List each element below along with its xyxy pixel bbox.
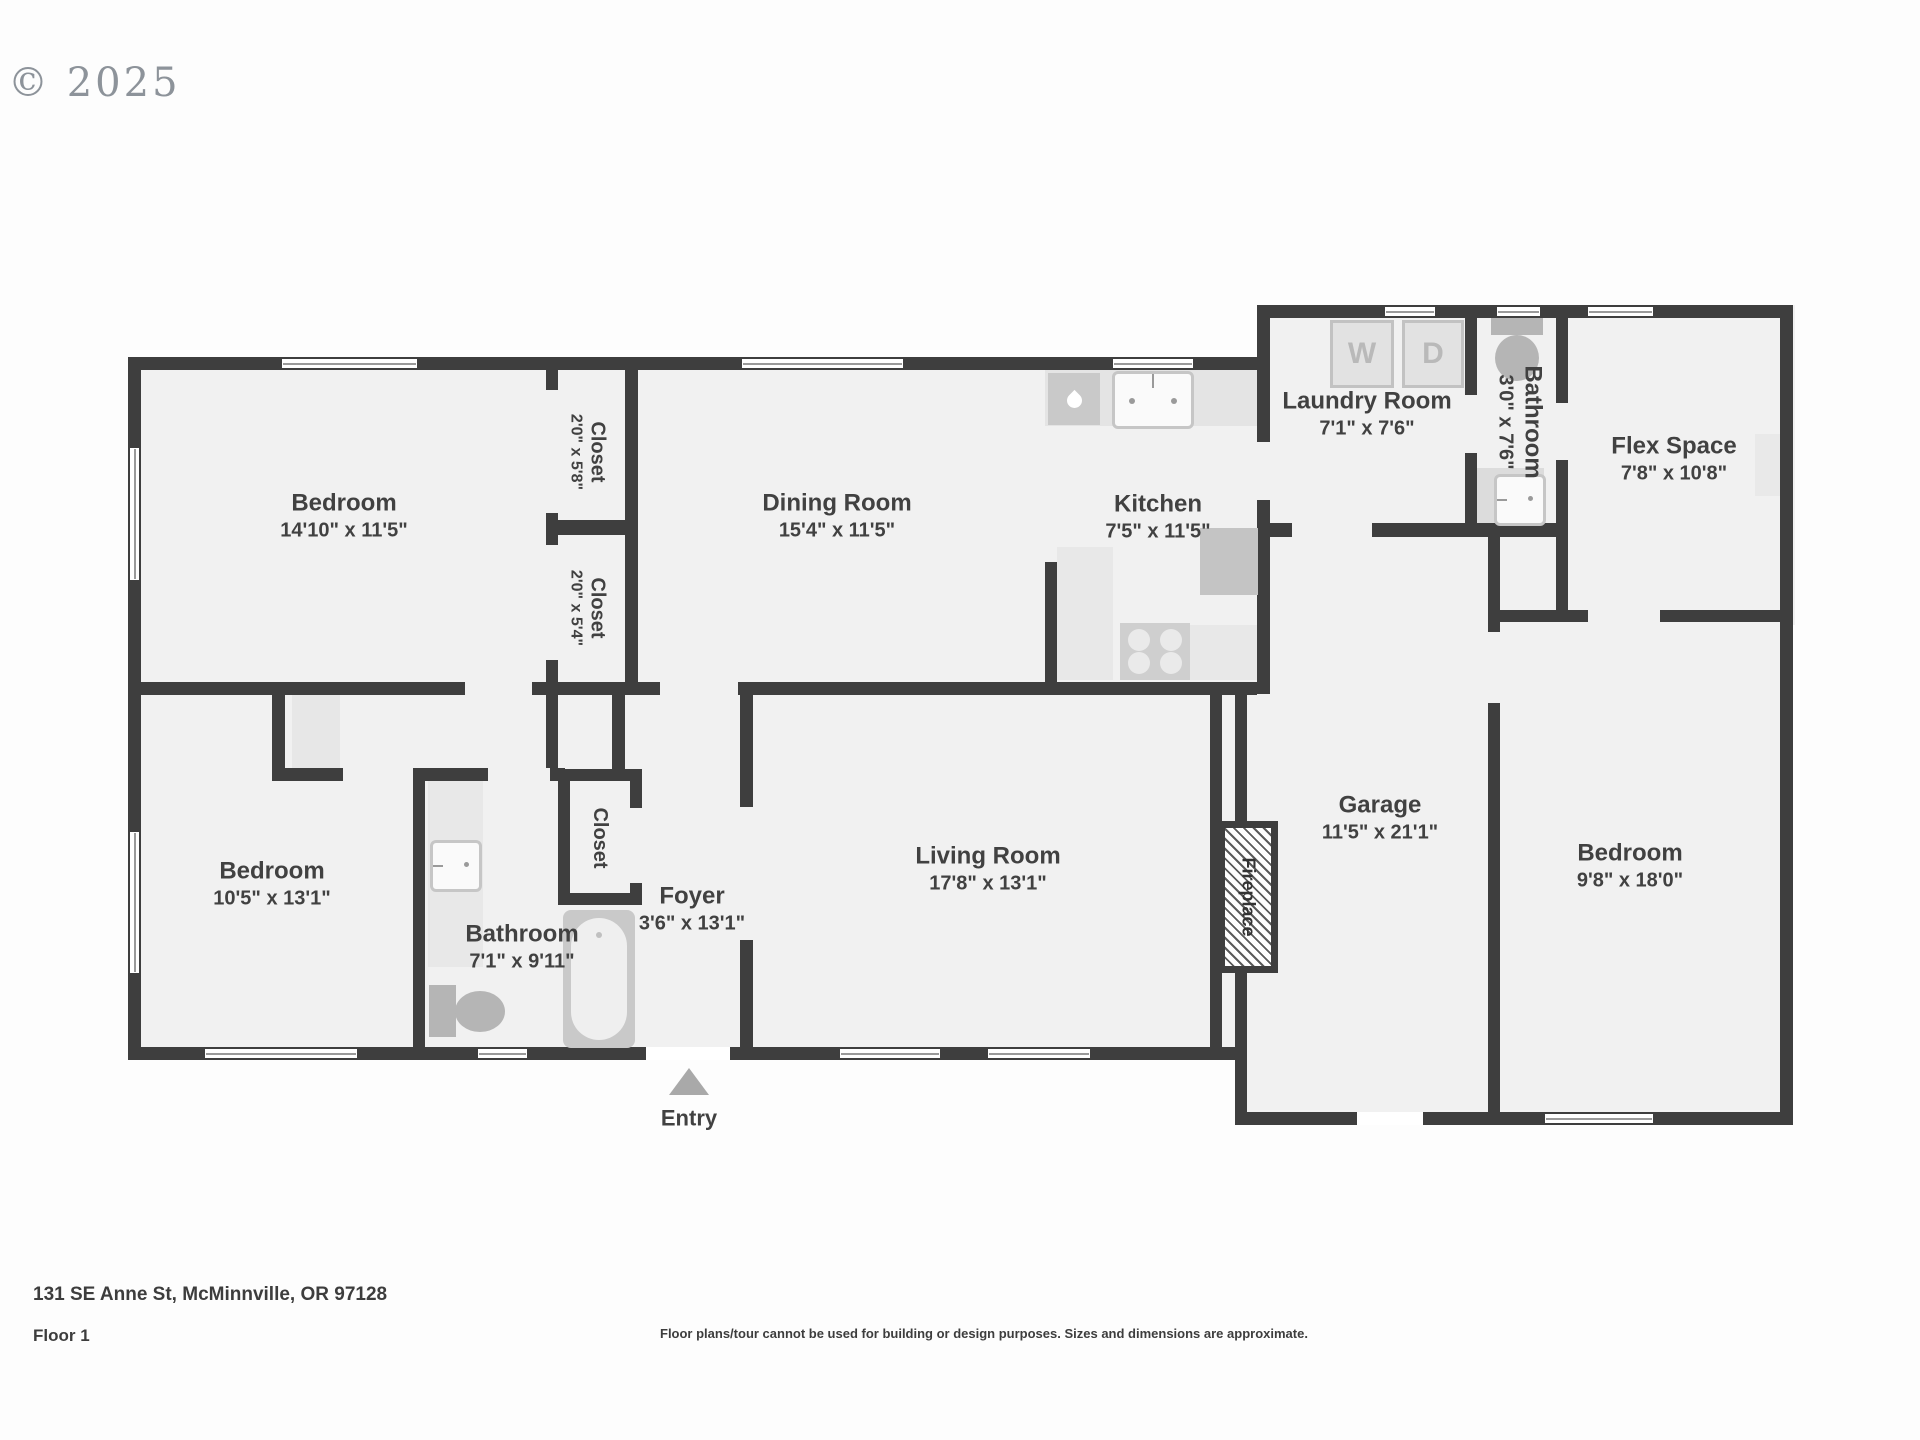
stove-icon bbox=[1120, 623, 1190, 680]
wall bbox=[612, 694, 625, 769]
door-opening bbox=[1588, 610, 1660, 622]
room-label-dining-room: Dining Room15'4" x 11'5" bbox=[762, 489, 911, 544]
door-opening bbox=[465, 682, 532, 695]
toilet-bowl-icon bbox=[455, 991, 505, 1032]
window bbox=[1385, 305, 1435, 318]
door-opening bbox=[546, 545, 558, 660]
entry-arrow-icon bbox=[669, 1068, 709, 1095]
door-opening bbox=[1292, 523, 1372, 537]
door-opening bbox=[546, 390, 558, 513]
bathroom-sink-icon bbox=[1494, 474, 1546, 526]
dryer-icon: D bbox=[1402, 320, 1464, 388]
window bbox=[742, 357, 903, 370]
kitchen-sink-icon bbox=[1112, 371, 1194, 429]
window bbox=[478, 1047, 527, 1060]
room-label-bedroom-top-left: Bedroom14'10" x 11'5" bbox=[280, 489, 407, 544]
kitchen-counter bbox=[1190, 625, 1257, 680]
window bbox=[282, 357, 417, 370]
room-label-flex-space: Flex Space7'8" x 10'8" bbox=[1611, 432, 1736, 487]
toilet-icon bbox=[429, 985, 456, 1037]
door-opening bbox=[1257, 442, 1270, 500]
room-label-closet-upper: Closet2'0" x 5'8" bbox=[566, 414, 609, 490]
room-label-foyer: Foyer3'6" x 13'1" bbox=[639, 882, 745, 937]
window bbox=[128, 448, 141, 580]
door-opening bbox=[660, 682, 738, 695]
wall bbox=[1045, 562, 1057, 682]
room-label-bedroom-right: Bedroom9'8" x 18'0" bbox=[1577, 839, 1683, 894]
room-label-kitchen: Kitchen7'5" x 11'5" bbox=[1105, 490, 1210, 545]
entry-label: Entry bbox=[661, 1104, 717, 1132]
flex-alcove bbox=[1755, 434, 1781, 496]
washer-icon: W bbox=[1330, 320, 1394, 388]
wall bbox=[272, 694, 285, 768]
window bbox=[1545, 1112, 1653, 1125]
door-opening bbox=[488, 768, 550, 781]
wall bbox=[413, 778, 425, 1047]
wall bbox=[1235, 1112, 1793, 1125]
window bbox=[1113, 357, 1193, 370]
garage-door-opening bbox=[1357, 1112, 1423, 1125]
wall bbox=[1780, 305, 1793, 1125]
room-label-closet-lower: Closet2'0" x 5'4" bbox=[566, 570, 609, 646]
disclaimer-text: Floor plans/tour cannot be used for buil… bbox=[660, 1326, 1308, 1341]
window bbox=[840, 1047, 940, 1060]
floor-plan: © 2025 bbox=[0, 0, 1920, 1440]
window bbox=[988, 1047, 1090, 1060]
door-opening bbox=[343, 768, 413, 781]
window bbox=[205, 1047, 357, 1060]
dishwasher-icon bbox=[1048, 373, 1100, 425]
room-label-bathroom-top: Bathroom3'0" x 7'6" bbox=[1493, 365, 1548, 478]
window bbox=[1497, 305, 1540, 318]
room-label-closet-foyer: Closet bbox=[588, 807, 612, 868]
door-opening bbox=[1488, 632, 1500, 703]
kitchen-counter bbox=[1057, 547, 1113, 680]
door-opening bbox=[1465, 395, 1477, 453]
hall-closet-nook bbox=[292, 694, 340, 768]
floor-number-text: Floor 1 bbox=[33, 1326, 90, 1346]
room-label-garage: Garage11'5" x 21'1" bbox=[1322, 791, 1438, 846]
wall bbox=[558, 769, 570, 905]
room-label-bathroom-bottom: Bathroom7'1" x 9'11" bbox=[465, 920, 578, 975]
room-label-bedroom-lower-left: Bedroom10'5" x 13'1" bbox=[213, 857, 330, 912]
fireplace-label: Fireplace bbox=[1238, 857, 1259, 936]
door-opening bbox=[1556, 403, 1568, 460]
entry-door-opening bbox=[646, 1047, 730, 1060]
fireplace: Fireplace bbox=[1218, 821, 1278, 973]
wall bbox=[625, 370, 638, 682]
wall bbox=[546, 682, 558, 768]
wall bbox=[1488, 537, 1500, 1112]
room-label-living-room: Living Room17'8" x 13'1" bbox=[915, 842, 1060, 897]
door-opening bbox=[630, 808, 642, 883]
bathroom-sink-icon bbox=[430, 840, 482, 892]
toilet-icon bbox=[1491, 318, 1543, 335]
copyright-watermark: © 2025 bbox=[8, 60, 181, 106]
window bbox=[128, 832, 141, 973]
room-label-laundry-room: Laundry Room7'1" x 7'6" bbox=[1282, 387, 1451, 442]
window bbox=[1588, 305, 1653, 318]
address-text: 131 SE Anne St, McMinnville, OR 97128 bbox=[33, 1284, 387, 1306]
wall bbox=[1556, 305, 1568, 622]
